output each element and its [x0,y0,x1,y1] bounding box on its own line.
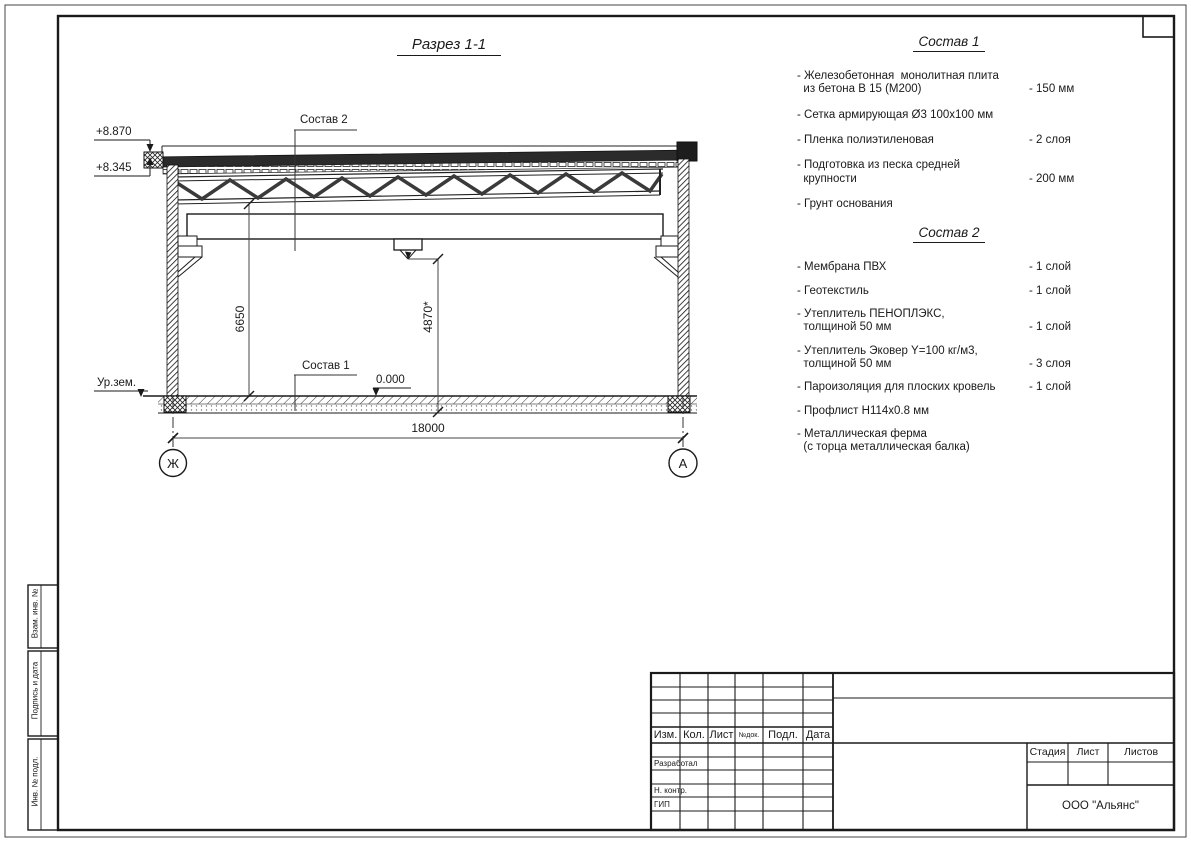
elevation-mark-top: +8.870 [96,126,132,138]
spec-item: - Профлист Н114х0.8 мм [797,405,1101,418]
axis-letter-left: Ж [159,456,187,471]
right-column [654,159,689,412]
tb-sheets-label: Листов [1108,746,1174,758]
specification-panel: Состав 1 - Железобетонная монолитная пли… [797,34,1101,465]
tb-col-ndok: №док. [735,732,763,739]
tb-col-kol: Кол. [680,729,708,741]
spec-item: - Грунт основания [797,198,1101,211]
spec-item: - Подготовка из песка средней крупности … [797,159,1101,186]
side-stamp-inv: Инв. № подл. [31,736,40,828]
spec-item: - Утеплитель Эковер Y=100 кг/м3, толщино… [797,345,1101,372]
callout-sostav2: Состав 2 [300,114,348,126]
steel-truss [174,169,663,204]
sostav1-heading: Состав 1 [913,34,985,52]
left-column [167,165,202,412]
drawing-sheet: Разрез 1-1 Состав 2 Состав 1 +8.870 +8.3… [0,0,1191,842]
tb-sheet-label: Лист [1068,746,1108,758]
spec-item: - Геотекстиль - 1 слой [797,285,1101,298]
tb-col-data: Дата [803,729,833,741]
roof-assembly [144,142,697,174]
tb-row-razrabotal: Разработал [654,759,698,768]
side-stamp-podpis: Подпись и дата [31,645,40,737]
sostav2-heading: Состав 2 [913,225,985,243]
sostav2-list: - Мембрана ПВХ - 1 слой - Геотекстиль - … [797,261,1101,454]
sostav1-list: - Железобетонная монолитная плита из бет… [797,70,1101,211]
spec-item: - Пароизоляция для плоских кровель - 1 с… [797,381,1101,394]
floor-slab [143,396,697,413]
tb-col-izm: Изм. [651,729,680,741]
dim-height-6650: 6650 [233,289,247,349]
floor-level-mark: 0.000 [376,374,405,386]
drawing-view-title: Разрез 1-1 [397,36,501,56]
tb-col-podp: Подл. [763,729,803,741]
tb-stage-label: Стадия [1027,746,1068,758]
tb-row-nkontr: Н. контр. [654,786,687,795]
tb-col-list: Лист [708,729,735,741]
crane-beam [187,214,663,259]
spec-item: - Сетка армирующая Ø3 100х100 мм [797,109,1101,122]
spec-item: - Железобетонная монолитная плита из бет… [797,70,1101,97]
spec-item: - Пленка полиэтиленовая - 2 слоя [797,134,1101,147]
spec-item: - Мембрана ПВХ - 1 слой [797,261,1101,274]
dim-span-18000: 18000 [398,421,458,435]
callout-sostav1: Состав 1 [302,360,350,372]
dim-height-4870: 4870* [421,287,435,347]
elevation-mark-eave: +8.345 [96,162,132,174]
spec-item: - Утеплитель ПЕНОПЛЭКС, толщиной 50 мм -… [797,308,1101,335]
tb-row-gip: ГИП [654,800,670,809]
spec-item: - Металлическая ферма (с торца металличе… [797,428,1101,455]
tb-company-name: ООО "Альянс" [1027,800,1174,812]
axis-letter-right: А [669,456,697,471]
ground-level-label: Ур.зем. [97,377,136,389]
